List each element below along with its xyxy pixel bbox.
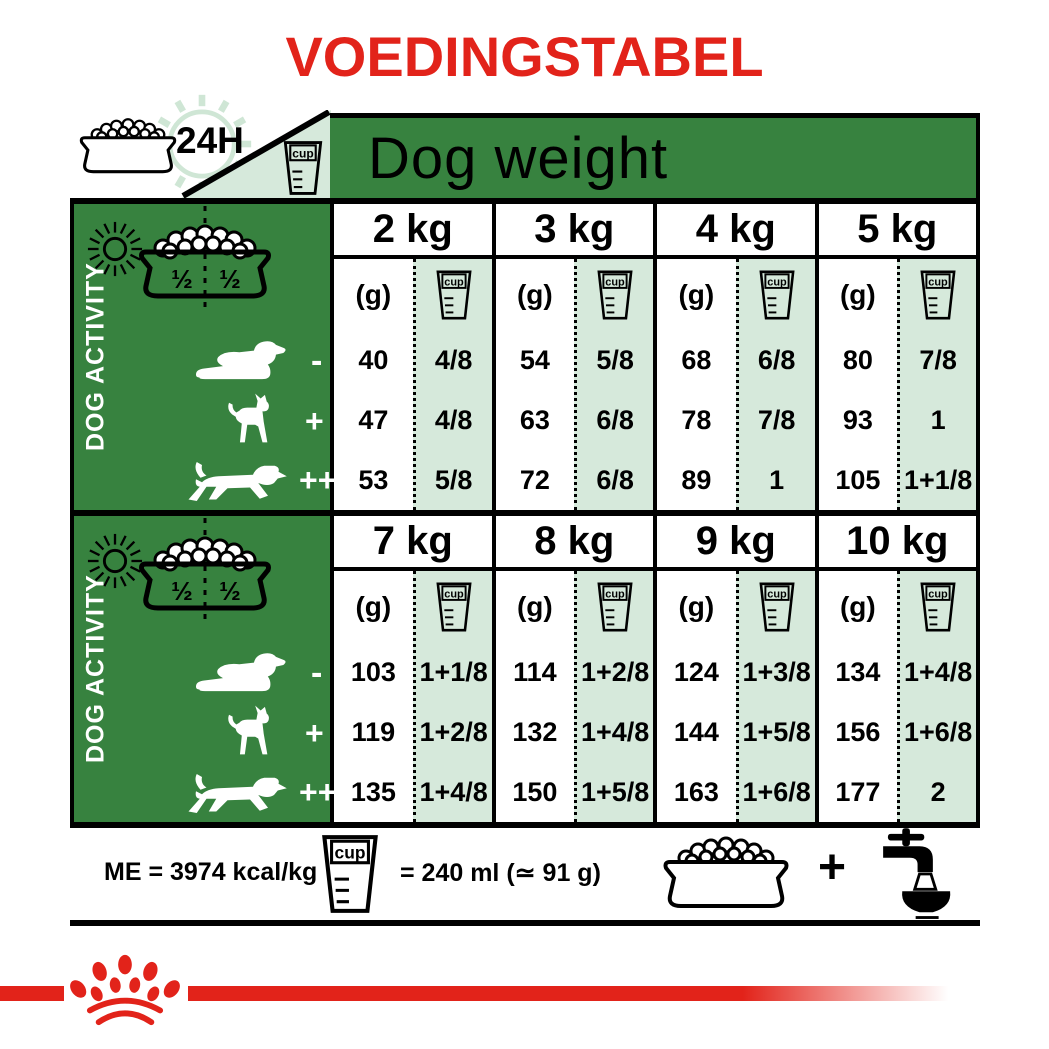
cup-value: 1+1/8: [900, 450, 976, 510]
cup-unit-icon: [416, 571, 492, 643]
weight-column: 4 kg (g) 68 78 89 6/8 7/8 1: [653, 204, 815, 510]
dog-standing-icon: [214, 702, 286, 758]
legend-band: ME = 3974 kcal/kg = 240 ml (≃ 91 g) +: [70, 828, 980, 920]
cup-value: 1: [900, 391, 976, 451]
activity-low-symbol: -: [311, 342, 322, 381]
cup-value: 1+3/8: [739, 643, 815, 703]
grams-value: 53: [334, 450, 413, 510]
grams-value: 105: [819, 450, 898, 510]
grams-value: 47: [334, 391, 413, 451]
activity-medium-symbol: +: [305, 403, 324, 440]
cup-value: 1+4/8: [416, 762, 492, 822]
grams-value: 78: [657, 391, 736, 451]
grams-value: 144: [657, 703, 736, 763]
grams-unit-label: (g): [657, 259, 736, 331]
grams-value: 177: [819, 762, 898, 822]
grams-value: 63: [496, 391, 575, 451]
grams-value: 40: [334, 331, 413, 391]
cup-value: 4/8: [416, 391, 492, 451]
grams-value: 103: [334, 643, 413, 703]
brand-line-right: [188, 986, 980, 1001]
cup-equivalence-text: = 240 ml (≃ 91 g): [400, 858, 601, 888]
grams-value: 93: [819, 391, 898, 451]
grams-value: 114: [496, 643, 575, 703]
cup-unit-icon: [739, 259, 815, 331]
grams-unit-label: (g): [496, 259, 575, 331]
grams-value: 68: [657, 331, 736, 391]
weight-header: 8 kg: [496, 516, 654, 571]
weight-header: 7 kg: [334, 516, 492, 571]
activity-high-symbol: ++: [299, 774, 336, 811]
half-bowl-icon: [130, 206, 280, 318]
water-faucet-icon: [864, 828, 952, 920]
weight-section-small: DOG ACTIVITY - + ++ 2 kg (g) 40 47 53: [70, 204, 980, 510]
ration-grid: 7 kg (g) 103 119 135 1+1/8 1+2/8 1+4/8: [330, 516, 980, 822]
grams-unit-label: (g): [496, 571, 575, 643]
measuring-cup-icon: [281, 139, 325, 197]
grams-value: 156: [819, 703, 898, 763]
dog-standing-icon: [214, 390, 286, 446]
cup-value: 1+6/8: [900, 703, 976, 763]
dog-resting-icon: [192, 340, 298, 384]
weight-column: 10 kg (g) 134 156 177 1+4/8 1+6/8 2: [815, 516, 977, 822]
cup-value: 1: [739, 450, 815, 510]
weight-header: 10 kg: [819, 516, 977, 571]
measuring-cup-icon: [318, 832, 382, 916]
royal-canin-crown-logo: [64, 948, 186, 1028]
food-bowl-icon: [656, 834, 796, 914]
dog-activity-sidebar: DOG ACTIVITY - + ++: [70, 516, 330, 822]
plus-sign: +: [818, 840, 846, 895]
dog-activity-sidebar: DOG ACTIVITY - + ++: [70, 204, 330, 510]
grams-value: 124: [657, 643, 736, 703]
cup-value: 2: [900, 762, 976, 822]
activity-low-symbol: -: [311, 654, 322, 693]
page-title: VOEDINGSTABEL: [0, 24, 1049, 89]
cup-value: 6/8: [577, 450, 653, 510]
cup-unit-icon: [577, 571, 653, 643]
cup-value: 4/8: [416, 331, 492, 391]
cup-value: 1+5/8: [739, 703, 815, 763]
feeding-table-sheet: VOEDINGSTABEL 24H Dog weight DOG ACTIVIT…: [0, 0, 1049, 1049]
weight-header: 2 kg: [334, 204, 492, 259]
activity-medium-symbol: +: [305, 715, 324, 752]
weight-header: 9 kg: [657, 516, 815, 571]
cup-unit-icon: [577, 259, 653, 331]
dog-weight-title: Dog weight: [330, 125, 668, 192]
grams-value: 132: [496, 703, 575, 763]
weight-column: 9 kg (g) 124 144 163 1+3/8 1+5/8 1+6/8: [653, 516, 815, 822]
weight-header: 5 kg: [819, 204, 977, 259]
weight-header: 3 kg: [496, 204, 654, 259]
cup-value: 6/8: [739, 331, 815, 391]
cup-value: 1+5/8: [577, 762, 653, 822]
grams-unit-label: (g): [657, 571, 736, 643]
grams-value: 135: [334, 762, 413, 822]
cup-unit-icon: [900, 259, 976, 331]
cup-value: 5/8: [577, 331, 653, 391]
grams-unit-label: (g): [819, 259, 898, 331]
cup-value: 7/8: [900, 331, 976, 391]
grams-value: 119: [334, 703, 413, 763]
cup-unit-icon: [900, 571, 976, 643]
brand-line-left: [0, 986, 64, 1001]
cup-value: 1+1/8: [416, 643, 492, 703]
half-bowl-icon: [130, 518, 280, 630]
weight-column: 3 kg (g) 54 63 72 5/8 6/8 6/8: [492, 204, 654, 510]
cup-value: 1+2/8: [577, 643, 653, 703]
cup-value: 7/8: [739, 391, 815, 451]
cup-value: 1+6/8: [739, 762, 815, 822]
metabolizable-energy-text: ME = 3974 kcal/kg: [104, 858, 317, 887]
weight-section-large: DOG ACTIVITY - + ++ 7 kg (g) 103 119 135: [70, 516, 980, 822]
cup-value: 1+4/8: [900, 643, 976, 703]
moon-icon: [286, 226, 328, 282]
weight-header: 4 kg: [657, 204, 815, 259]
dog-weight-header: Dog weight: [330, 113, 980, 198]
cup-value: 5/8: [416, 450, 492, 510]
cup-unit-icon: [416, 259, 492, 331]
grams-value: 72: [496, 450, 575, 510]
grams-unit-label: (g): [819, 571, 898, 643]
cup-value: 1+4/8: [577, 703, 653, 763]
weight-column: 8 kg (g) 114 132 150 1+2/8 1+4/8 1+5/8: [492, 516, 654, 822]
cup-value: 1+2/8: [416, 703, 492, 763]
grams-value: 134: [819, 643, 898, 703]
moon-icon: [286, 538, 328, 594]
cup-unit-icon: [739, 571, 815, 643]
grams-unit-label: (g): [334, 259, 413, 331]
activity-high-symbol: ++: [299, 462, 336, 499]
weight-column: 2 kg (g) 40 47 53 4/8 4/8 5/8: [330, 204, 492, 510]
dog-resting-icon: [192, 652, 298, 696]
grams-value: 150: [496, 762, 575, 822]
dog-active-icon: [176, 768, 300, 816]
weight-column: 7 kg (g) 103 119 135 1+1/8 1+2/8 1+4/8: [330, 516, 492, 822]
ration-grid: 2 kg (g) 40 47 53 4/8 4/8 5/8: [330, 204, 980, 510]
grams-value: 54: [496, 331, 575, 391]
cup-value: 6/8: [577, 391, 653, 451]
dog-active-icon: [176, 456, 300, 504]
grams-value: 80: [819, 331, 898, 391]
weight-column: 5 kg (g) 80 93 105 7/8 1 1+1/8: [815, 204, 977, 510]
food-bowl-icon: [74, 116, 182, 178]
divider: [70, 920, 980, 926]
grams-value: 89: [657, 450, 736, 510]
grams-value: 163: [657, 762, 736, 822]
grams-unit-label: (g): [334, 571, 413, 643]
